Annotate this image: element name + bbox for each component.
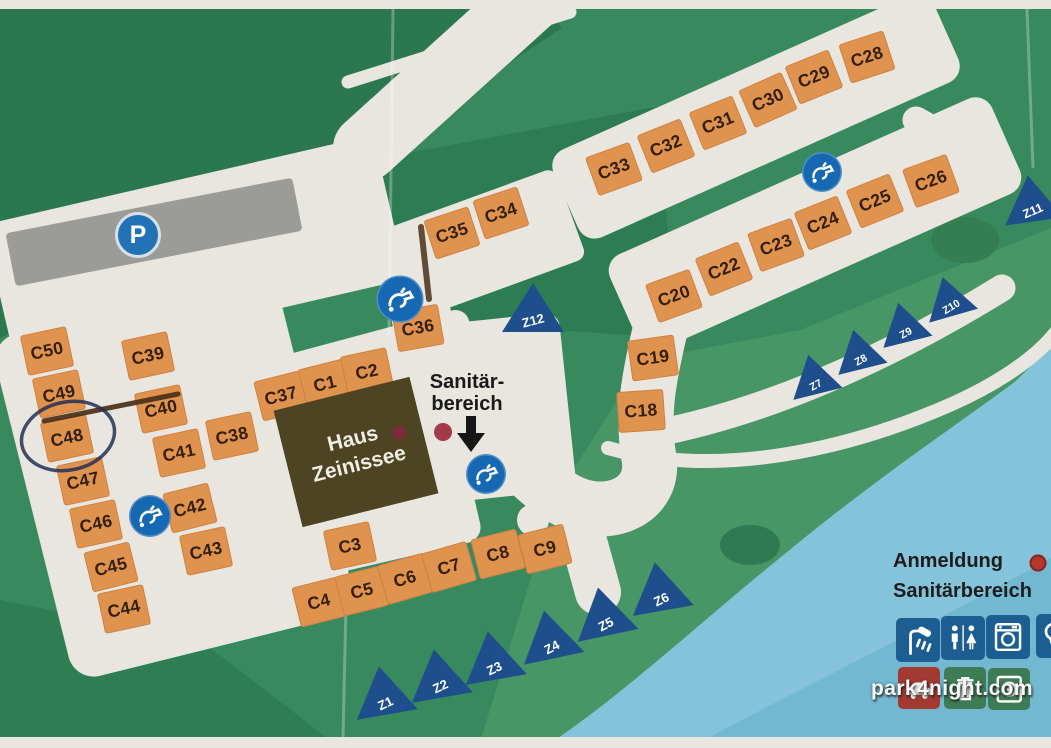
- campsite-map: C1 C2 C3 C4 C5 C6 C7 C8 C9 C18 C19: [0, 0, 1051, 748]
- park4night-watermark: park4night.com: [871, 677, 1033, 701]
- watermark-layer: park4night.com: [0, 0, 1051, 748]
